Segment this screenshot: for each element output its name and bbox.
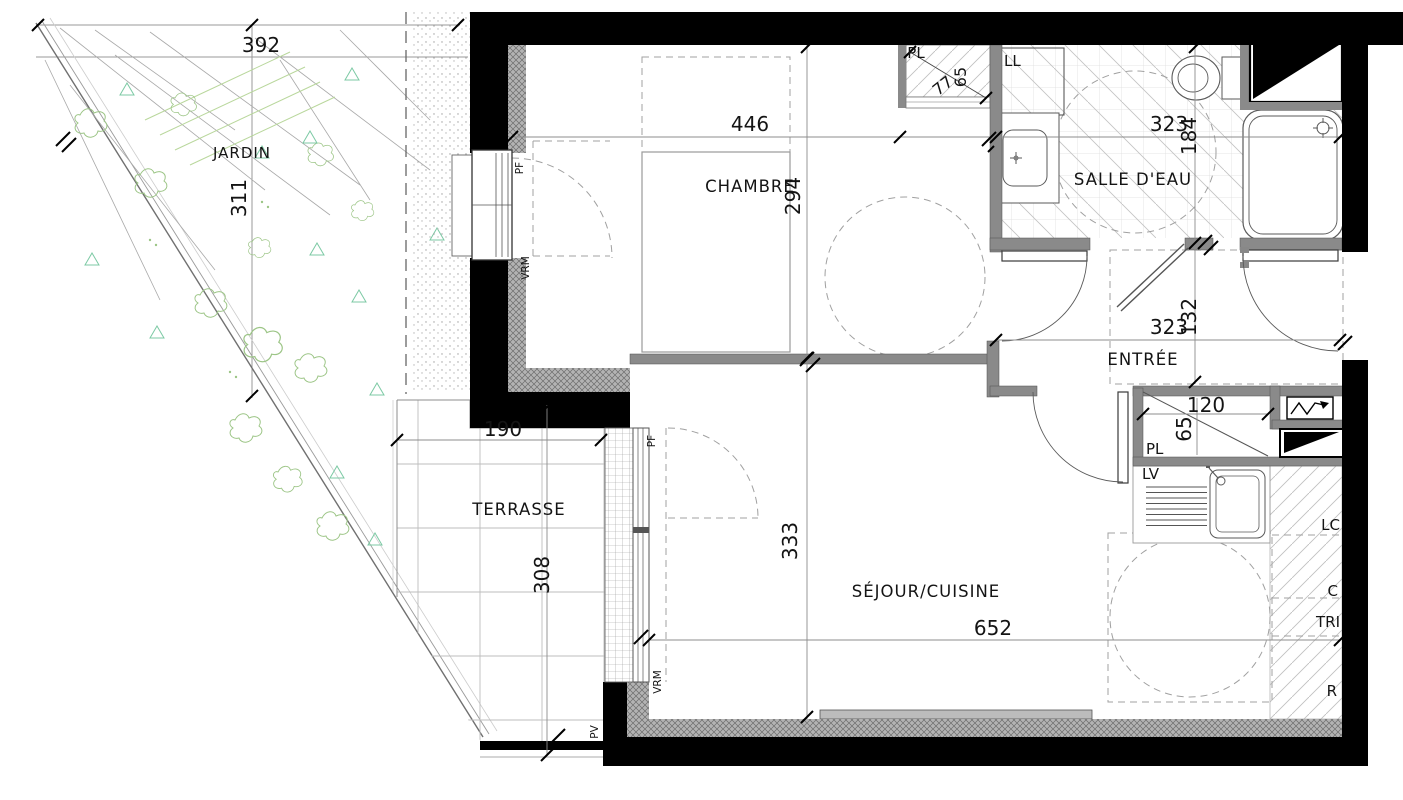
- closet-entry-tag: PL: [1146, 440, 1164, 458]
- kitchen-sink: [1206, 464, 1265, 538]
- dim-living-height: 333: [778, 522, 802, 560]
- dim-bathroom-height: 184: [1177, 117, 1201, 155]
- bedroom-shutter-tag: VRM: [520, 256, 532, 280]
- shrubs: [75, 68, 444, 545]
- duct-shaft-entry: [1280, 429, 1343, 457]
- closet-bedroom-tag: PL: [907, 44, 925, 62]
- shower: [1243, 110, 1343, 240]
- living-kitchen-label: SÉJOUR/CUISINE: [852, 582, 1000, 601]
- passage-door-swing: [1033, 392, 1123, 482]
- waste-sorting-tag: TRI: [1315, 613, 1340, 631]
- turning-circle-bedroom: [825, 197, 985, 357]
- dishwasher-tag: LV: [1142, 465, 1160, 483]
- dim-bedroom-width: 446: [731, 112, 769, 136]
- wardrobe-zone: [642, 57, 790, 152]
- dim-terrace-width: 190: [484, 417, 522, 441]
- fridge-tag: R: [1327, 682, 1337, 700]
- terrace-label: TERRASSE: [471, 500, 565, 519]
- washing-machine-tag: LL: [1004, 52, 1021, 70]
- terrace-pv-tag: PV: [589, 724, 601, 738]
- floor-plan-page: JARDIN TERRASSE CHAMBRE SALLE D'EAU ENTR…: [0, 0, 1403, 800]
- bedroom-window-tag: PF: [514, 162, 526, 174]
- entrance-door-swing: [1243, 256, 1338, 351]
- dim-garden-height: 311: [227, 179, 251, 217]
- dim-closet-bedroom-depth: 65: [951, 67, 970, 87]
- washbasin: [997, 113, 1059, 203]
- turning-circle-kitchen: [1110, 537, 1270, 697]
- dim-living-width: 652: [974, 616, 1012, 640]
- living-shutter-tag: VRM: [652, 670, 664, 694]
- dim-closet-entry-depth: 65: [1172, 416, 1196, 441]
- bedroom-door-leaf: [1002, 251, 1087, 261]
- duct-shaft-top: [1240, 42, 1343, 110]
- dim-terrace-height: 308: [530, 556, 554, 594]
- radiator: [820, 710, 1092, 719]
- bedroom-door-swing: [1002, 256, 1087, 341]
- passage-door-leaf: [1118, 392, 1128, 483]
- bathroom-label: SALLE D'EAU: [1074, 170, 1192, 189]
- window-swing-living: [668, 428, 758, 518]
- dim-bedroom-height: 294: [781, 177, 805, 215]
- dim-garden-width: 392: [242, 33, 280, 57]
- garden-area: [36, 12, 497, 737]
- floor-plan-svg: JARDIN TERRASSE CHAMBRE SALLE D'EAU ENTR…: [0, 0, 1403, 800]
- living-window-tag: PF: [646, 435, 658, 447]
- terrace-area: [390, 395, 612, 757]
- laundry-column-tag: LC: [1321, 516, 1340, 534]
- bedroom-window-pf: [452, 150, 512, 260]
- electrical-panel: [1287, 397, 1333, 419]
- kitchen-zone: [1108, 533, 1272, 702]
- terrace-edge-wall: [480, 741, 608, 750]
- tree-branches: [45, 28, 430, 300]
- entry-label: ENTRÉE: [1107, 350, 1178, 369]
- dim-entry-height: 132: [1177, 298, 1201, 336]
- living-window-pf: [605, 428, 649, 682]
- terrace-tiles: [390, 395, 610, 745]
- garden-label: JARDIN: [212, 144, 271, 162]
- cooking-tag: C: [1328, 582, 1338, 600]
- dim-closet-entry-width: 120: [1187, 393, 1225, 417]
- window-swing-bedroom: [512, 158, 612, 258]
- toilet: [1172, 56, 1244, 100]
- entrance-door-leaf: [1243, 250, 1338, 261]
